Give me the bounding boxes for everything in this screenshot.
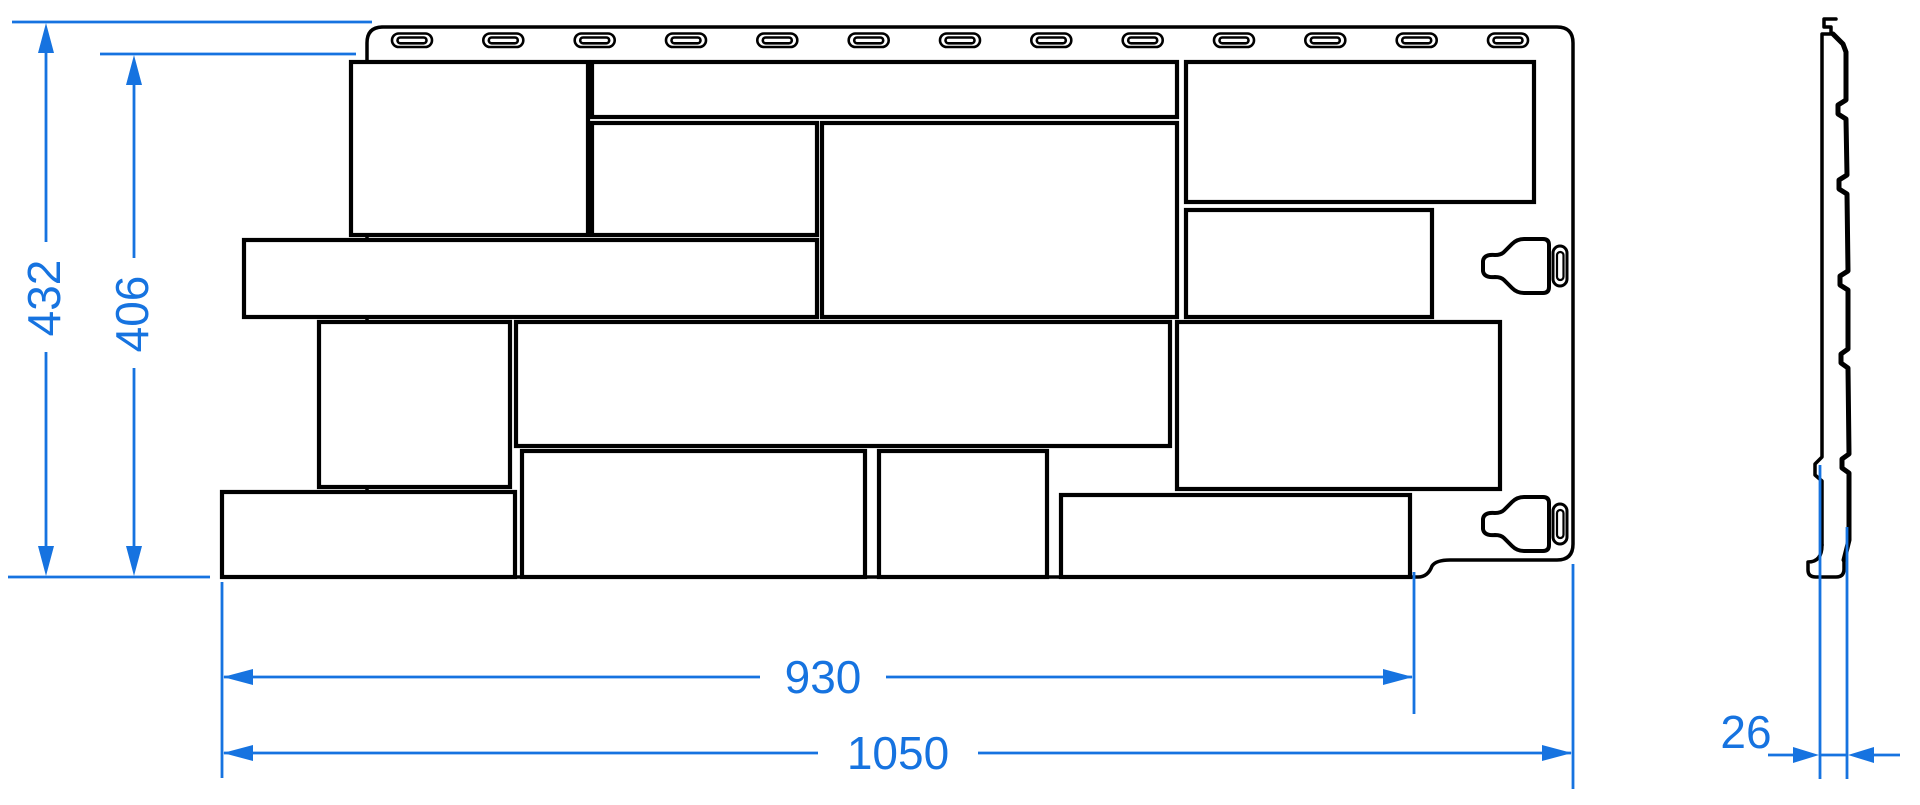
nail-slot (666, 34, 706, 48)
side-view (1808, 19, 1849, 577)
profile-front-edge (1833, 34, 1849, 560)
dimension-label: 1050 (847, 727, 949, 779)
nail-slot (1123, 34, 1163, 48)
stone (1186, 62, 1534, 202)
stone (244, 240, 817, 317)
nail-slot (940, 34, 980, 48)
stone (1177, 322, 1500, 489)
arrow-down (38, 546, 54, 576)
profile-back-edge (1815, 19, 1836, 545)
hook-slot-inner (1557, 252, 1564, 280)
dimension-label: 432 (18, 260, 70, 337)
front-view (222, 27, 1573, 577)
arrow-right (1383, 669, 1413, 685)
dimension-stone-field-width: 930 (222, 572, 1414, 778)
arrow-inward-right (1848, 747, 1874, 763)
stone (1061, 495, 1410, 577)
technical-drawing-page: 432 406 930 1050 (0, 0, 1920, 805)
nail-slot (483, 34, 523, 48)
dimension-label: 26 (1720, 706, 1771, 758)
arrow-down (126, 546, 142, 576)
stone (592, 123, 817, 235)
dimension-thickness: 26 (1720, 465, 1900, 779)
arrow-up (38, 23, 54, 53)
stone (351, 62, 588, 235)
arrow-right (1542, 745, 1572, 761)
stone (822, 123, 1177, 317)
arrow-left (223, 669, 253, 685)
stone (592, 62, 1177, 117)
nail-slot (1305, 34, 1345, 48)
arrow-inward-left (1793, 747, 1819, 763)
stone (516, 322, 1170, 446)
nail-slot (849, 34, 889, 48)
nail-slot (757, 34, 797, 48)
nail-slot (1031, 34, 1071, 48)
stone (522, 451, 865, 577)
facade-panel-drawing: 432 406 930 1050 (0, 0, 1920, 805)
stone (222, 492, 515, 577)
nail-slot (1397, 34, 1437, 48)
arrow-up (126, 55, 142, 85)
hook-slot-inner (1557, 510, 1564, 538)
nail-slot (1214, 34, 1254, 48)
dimension-label: 406 (106, 276, 158, 353)
nail-slot (575, 34, 615, 48)
nail-slot (1488, 34, 1528, 48)
stone (319, 322, 510, 487)
stone (1186, 210, 1432, 317)
nail-slot (392, 34, 432, 48)
profile-bottom-hook (1808, 545, 1844, 577)
dimension-label: 930 (785, 651, 862, 703)
stone (879, 451, 1047, 577)
arrow-left (223, 745, 253, 761)
